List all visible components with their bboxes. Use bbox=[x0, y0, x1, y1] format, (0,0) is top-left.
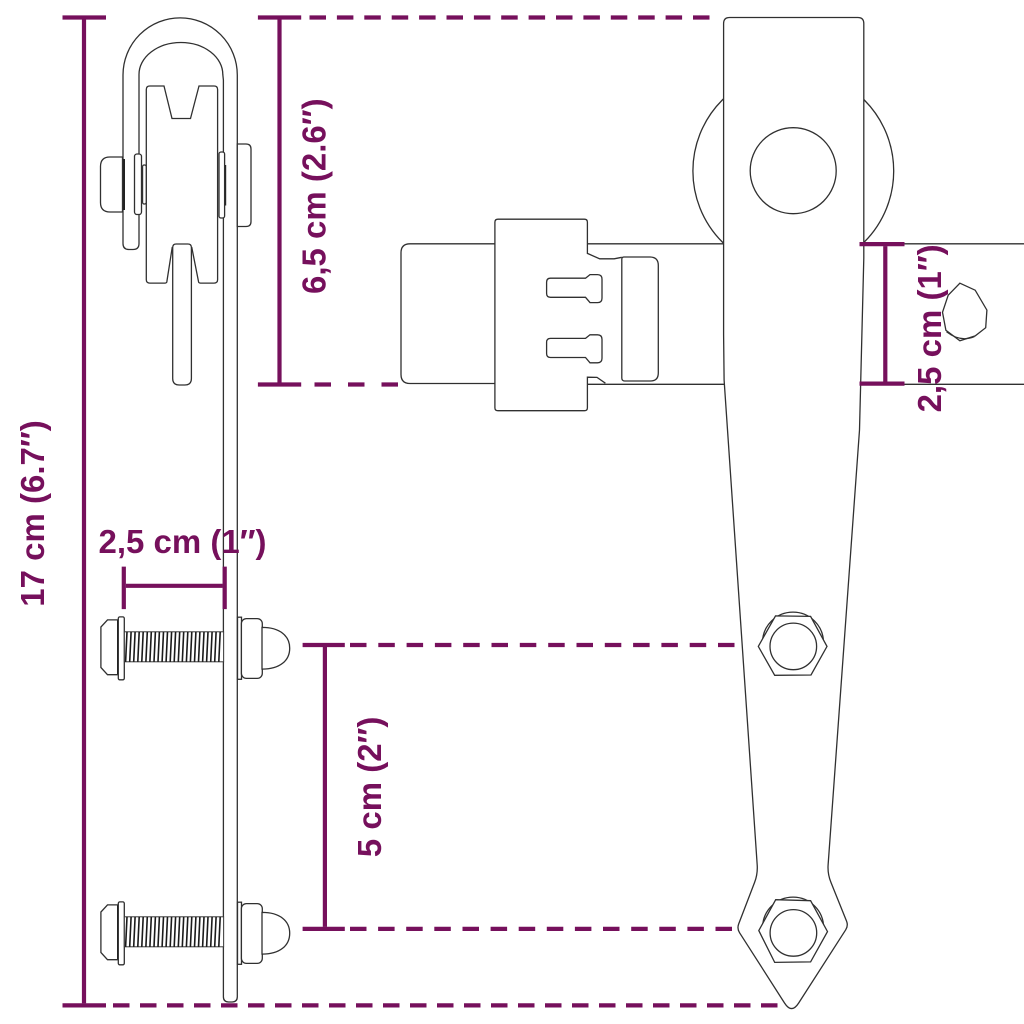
svg-text:2,5 cm (1″): 2,5 cm (1″) bbox=[98, 523, 266, 560]
svg-text:2,5 cm (1″): 2,5 cm (1″) bbox=[911, 244, 948, 412]
svg-text:17 cm (6.7″): 17 cm (6.7″) bbox=[14, 420, 51, 606]
svg-text:6,5 cm (2.6″): 6,5 cm (2.6″) bbox=[296, 98, 333, 294]
svg-text:5 cm (2″): 5 cm (2″) bbox=[351, 717, 388, 858]
